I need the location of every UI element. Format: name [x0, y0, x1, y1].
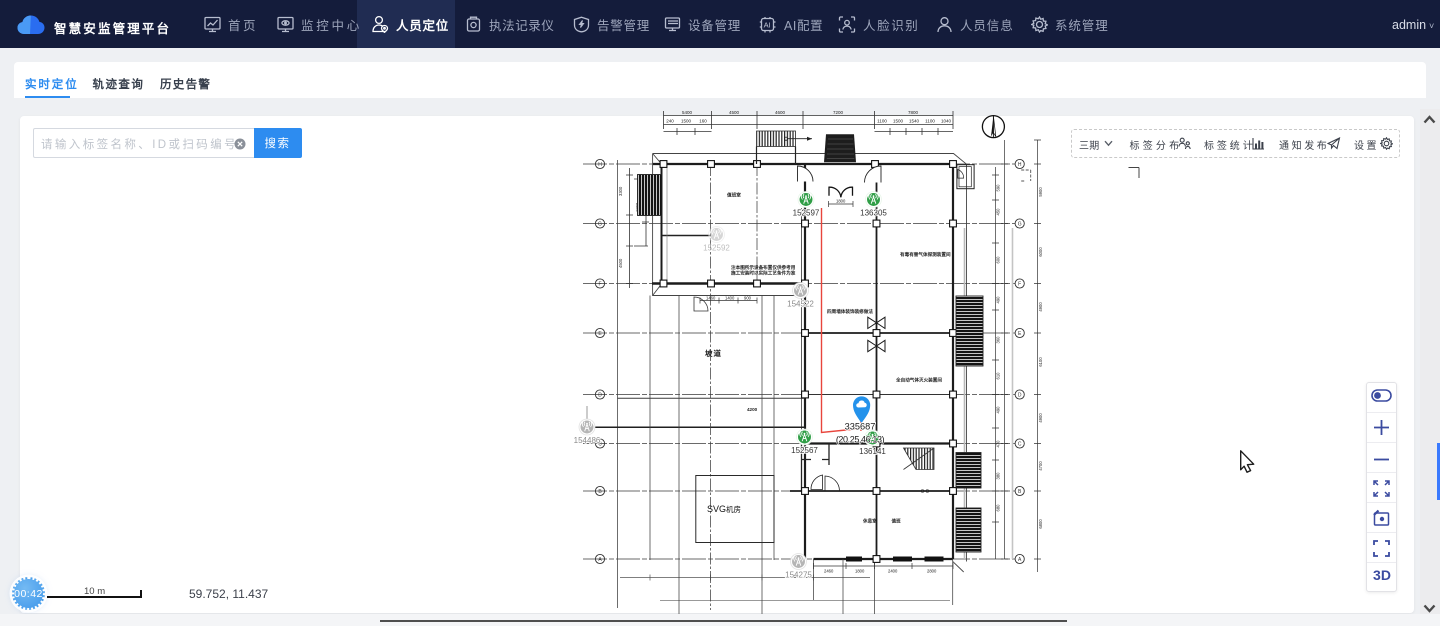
svg-text:1460: 1460 [706, 295, 716, 300]
svg-text:1800: 1800 [836, 198, 846, 203]
svg-text:SVG机房: SVG机房 [707, 504, 741, 514]
svg-text:3300: 3300 [618, 186, 623, 196]
svg-text:E: E [598, 331, 602, 337]
svg-text:152567: 152567 [791, 446, 818, 455]
svg-text:152597: 152597 [793, 209, 820, 218]
svg-text:490: 490 [996, 296, 1001, 304]
svg-text:C: C [1018, 441, 1022, 447]
svg-text:450: 450 [996, 208, 1001, 216]
svg-text:全自动气体灭火装置间: 全自动气体灭火装置间 [895, 377, 942, 384]
svg-text:380: 380 [996, 472, 1001, 480]
svg-text:H: H [1018, 162, 1022, 168]
svg-text:2400: 2400 [888, 569, 898, 574]
svg-text:136305: 136305 [860, 209, 887, 218]
svg-text:休息室: 休息室 [862, 518, 877, 525]
svg-text:G: G [1018, 221, 1022, 227]
svg-text:4700: 4700 [1038, 461, 1043, 471]
svg-text:4600: 4600 [775, 110, 786, 115]
svg-text:1040: 1040 [941, 119, 952, 124]
svg-text:F: F [1018, 281, 1021, 287]
svg-text:值班室: 值班室 [727, 192, 741, 199]
svg-text:490: 490 [996, 406, 1001, 414]
svg-text:4500: 4500 [729, 110, 740, 115]
svg-text:6000: 6000 [1038, 247, 1043, 257]
svg-text:AI: AI [764, 20, 771, 29]
svg-text:240: 240 [666, 119, 674, 124]
svg-text:6100: 6100 [1038, 357, 1043, 367]
svg-text:坡道: 坡道 [705, 348, 722, 358]
svg-text:F: F [598, 281, 601, 287]
svg-text:680: 680 [996, 504, 1001, 512]
svg-text:5900: 5900 [1038, 187, 1043, 197]
svg-text:7200: 7200 [833, 110, 844, 115]
svg-text:值班: 值班 [892, 518, 902, 525]
svg-text:1100: 1100 [877, 119, 887, 124]
svg-text:H: H [598, 162, 602, 168]
svg-text:470: 470 [996, 440, 1001, 448]
svg-text:2460: 2460 [824, 569, 834, 574]
svg-text:B-B: B-B [921, 489, 930, 494]
svg-text:152592: 152592 [703, 244, 730, 253]
svg-text:G: G [598, 221, 602, 227]
svg-text:4900: 4900 [1038, 413, 1043, 423]
svg-text:有毒有害气体探测装置间: 有毒有害气体探测装置间 [900, 251, 951, 258]
svg-text:610: 610 [996, 372, 1001, 380]
svg-text:D: D [598, 392, 602, 398]
svg-text:360: 360 [996, 336, 1001, 344]
svg-text:1500: 1500 [893, 119, 904, 124]
svg-text:1100: 1100 [925, 119, 935, 124]
svg-text:四周墙体装饰装修做法: 四周墙体装饰装修做法 [827, 308, 873, 315]
svg-text:600: 600 [996, 256, 1001, 264]
svg-text:B: B [598, 489, 602, 495]
svg-text:7800: 7800 [908, 110, 919, 115]
svg-text:154522: 154522 [787, 300, 814, 309]
svg-text:6800: 6800 [1038, 519, 1043, 529]
svg-text:136141: 136141 [859, 447, 886, 456]
svg-text:2800: 2800 [927, 569, 937, 574]
svg-text:1800: 1800 [855, 569, 865, 574]
svg-text:B: B [1018, 489, 1022, 495]
svg-text:施工安装时以实际工艺条件为准: 施工安装时以实际工艺条件为准 [730, 270, 796, 277]
svg-text:D: D [1018, 392, 1022, 398]
svg-text:4900: 4900 [1038, 302, 1043, 312]
svg-text:1400: 1400 [725, 295, 735, 300]
svg-text:1540: 1540 [909, 119, 920, 124]
svg-text:590: 590 [996, 184, 1001, 192]
svg-text:4500: 4500 [618, 258, 623, 268]
svg-text:154275: 154275 [785, 571, 812, 580]
svg-text:154486: 154486 [574, 436, 601, 445]
svg-text:900: 900 [744, 295, 752, 300]
svg-text:1500: 1500 [681, 119, 692, 124]
svg-text:E: E [1018, 331, 1022, 337]
svg-text:160: 160 [699, 119, 707, 124]
svg-text:A: A [1018, 557, 1022, 563]
svg-text:A: A [598, 557, 602, 563]
svg-text:4200: 4200 [747, 407, 758, 412]
svg-text:(20.25,46.13): (20.25,46.13) [836, 435, 885, 445]
svg-text:5400: 5400 [682, 110, 693, 115]
